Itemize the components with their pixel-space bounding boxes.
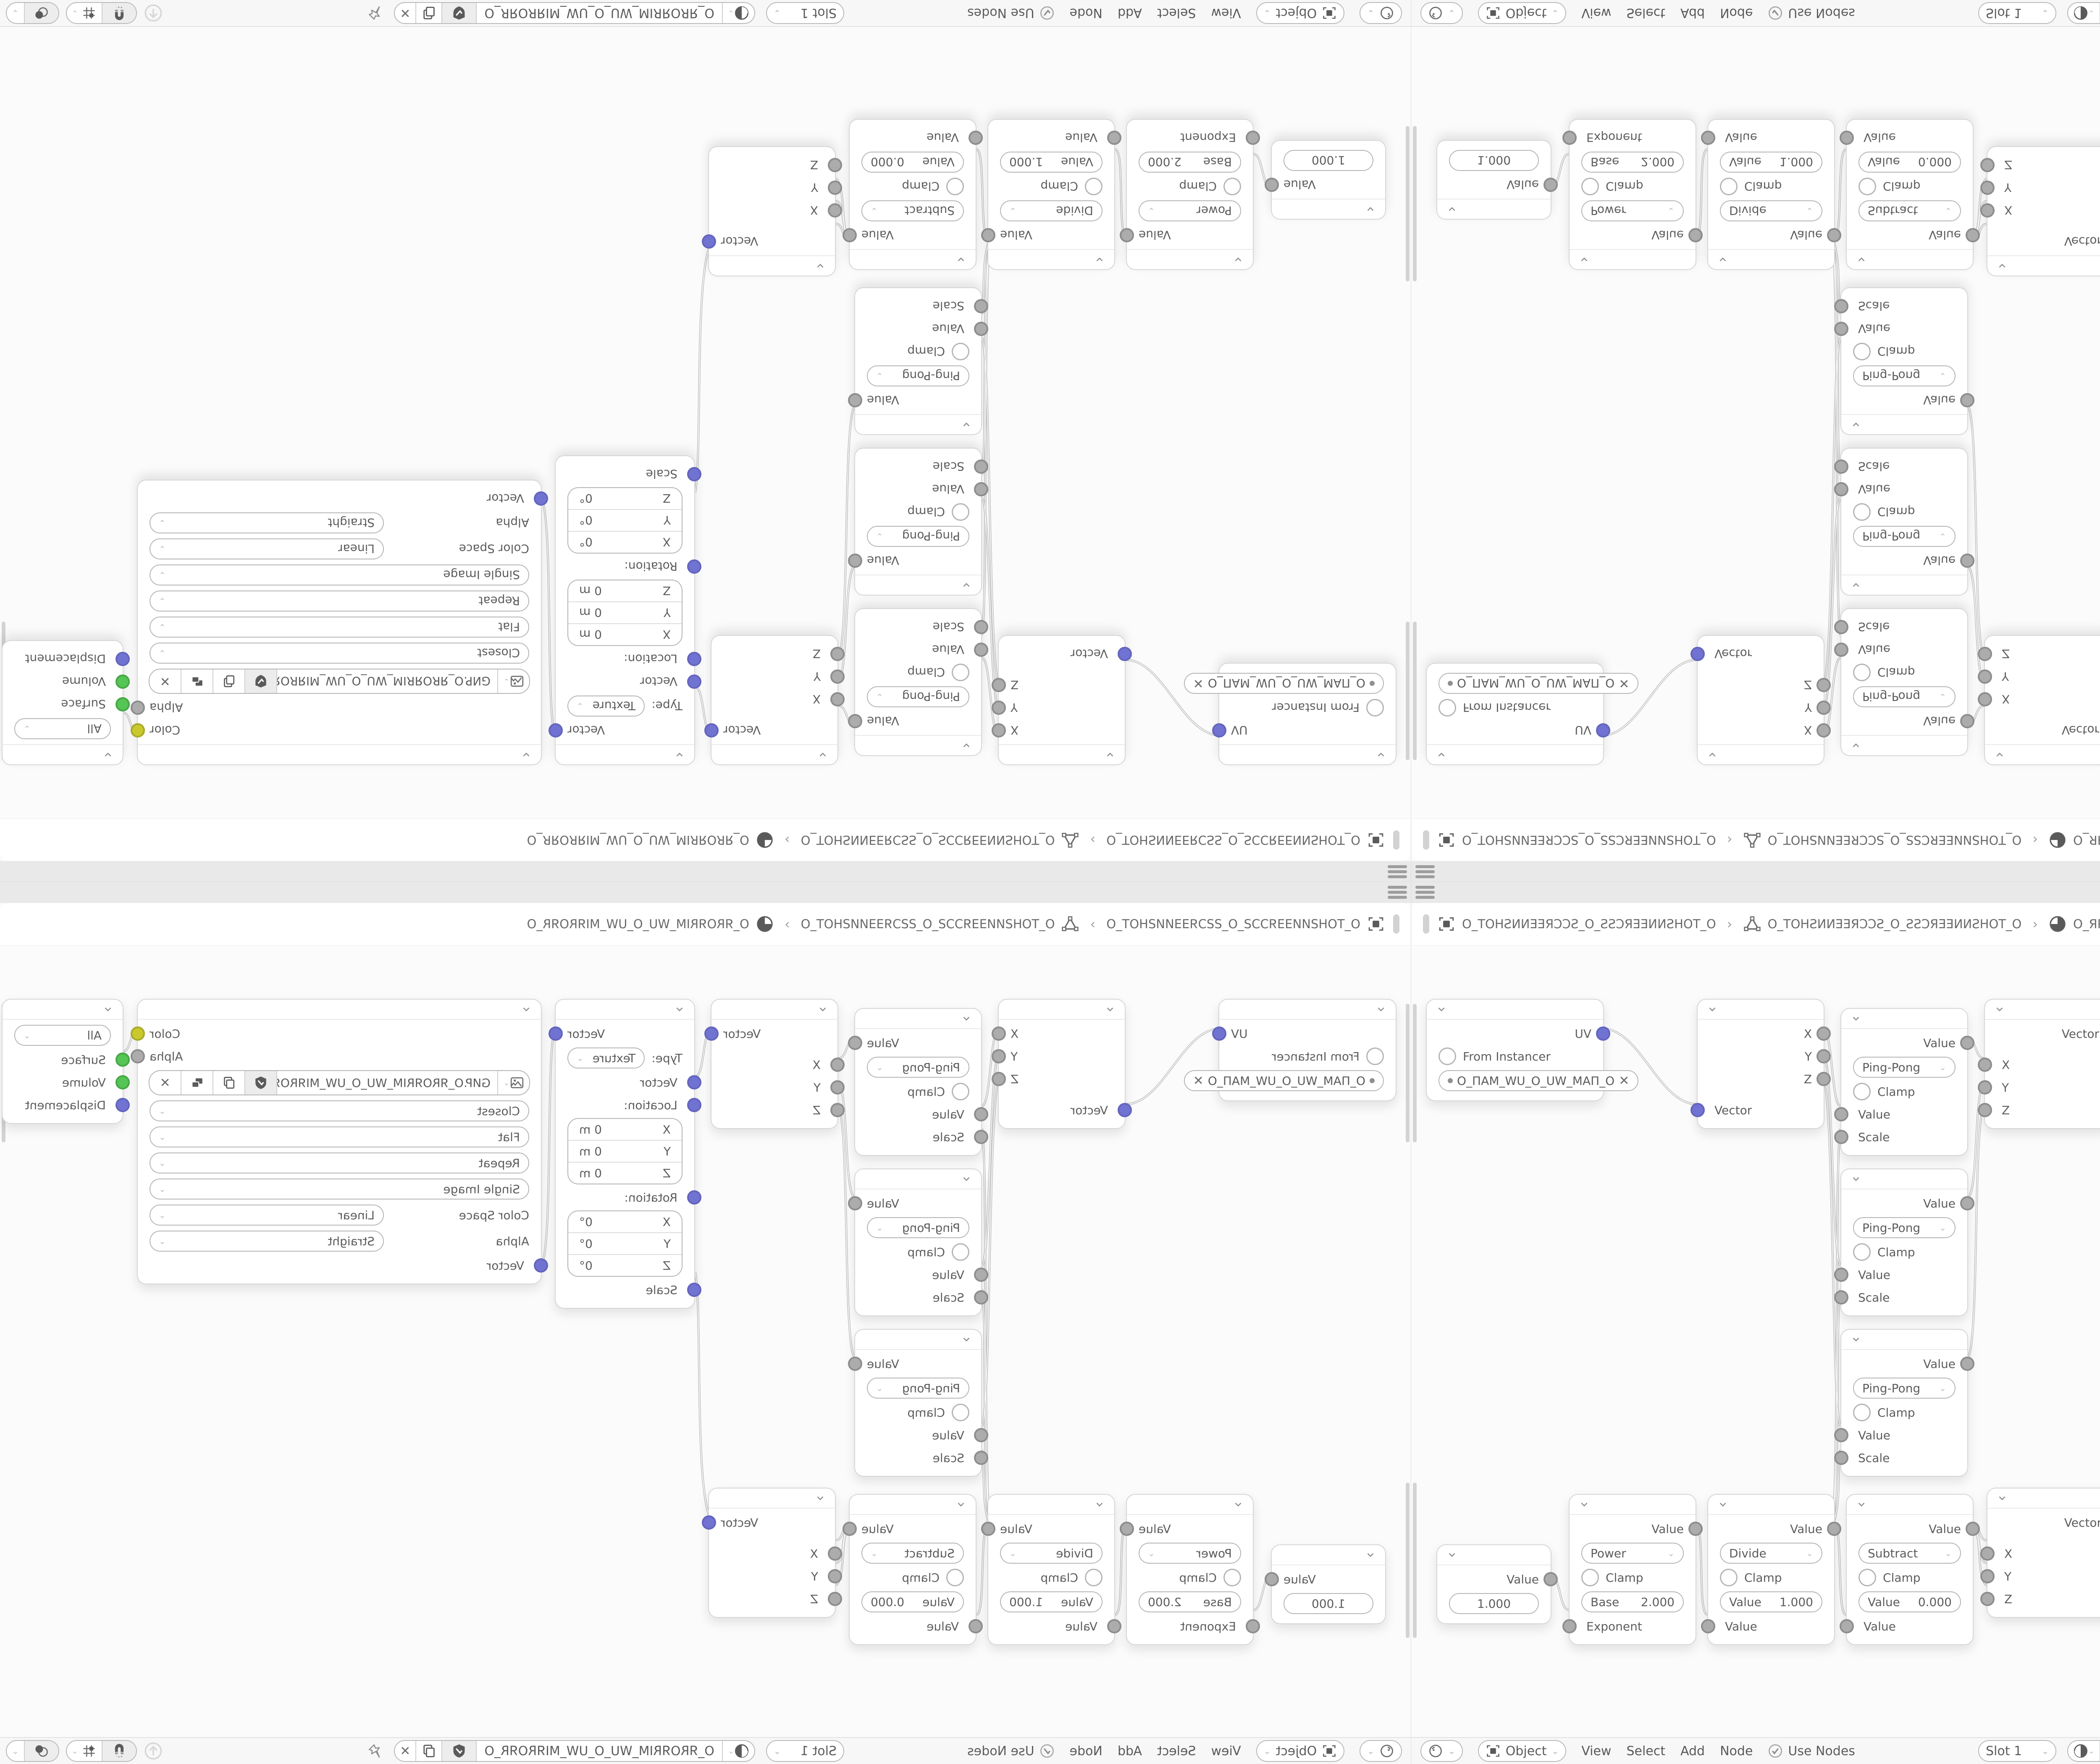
color-output-socket[interactable] <box>131 1026 145 1041</box>
location-input-socket[interactable] <box>687 652 701 666</box>
breadcrumb-material[interactable]: O_ЯROЯRIM_WU_O_UW_MIЯROЯR_O <box>2049 831 2100 849</box>
value-output-socket[interactable] <box>1543 1572 1558 1586</box>
clamp-checkbox[interactable] <box>1085 178 1102 195</box>
math-operation-dropdown[interactable]: Power⌄ <box>1581 200 1684 221</box>
menu-add[interactable]: Add <box>1680 6 1705 21</box>
rotation-z-field[interactable]: Z0° <box>568 1254 682 1276</box>
snap-toggle-button[interactable] <box>102 1741 136 1761</box>
node-math-divide[interactable]: Value Divide⌄ Clamp Value1.000 Value <box>987 1494 1115 1645</box>
browse-material-button[interactable]: ⌄ <box>2068 3 2100 23</box>
math-operation-dropdown[interactable]: Ping-Pong⌄ <box>1853 1217 1956 1238</box>
surface-input-socket[interactable] <box>115 1053 130 1067</box>
scale-input-socket[interactable] <box>687 1283 701 1297</box>
clamp-checkbox[interactable] <box>952 664 969 681</box>
up-arrow-circle-icon[interactable] <box>144 1741 163 1761</box>
node-math-pingpong-1[interactable]: Value Ping-Pong⌄ Clamp Value Scale <box>854 1008 982 1156</box>
material-slot-dropdown[interactable]: Slot 1⌄ <box>766 2 844 24</box>
scale-input-socket[interactable] <box>1834 1451 1848 1465</box>
value-output-socket[interactable] <box>843 1522 857 1536</box>
node-math-subtract[interactable]: Value Subtract⌄ Clamp Value0.000 Value <box>849 1494 976 1645</box>
material-slot-dropdown[interactable]: Slot 1⌄ <box>1978 1740 2056 1762</box>
base-field[interactable]: Base2.000 <box>1581 1591 1684 1612</box>
x-input-socket[interactable] <box>1978 692 1992 706</box>
z-input-socket[interactable] <box>828 1592 842 1606</box>
value-output-socket[interactable] <box>1688 1522 1703 1536</box>
z-input-socket[interactable] <box>830 647 845 661</box>
mapping-type-dropdown[interactable]: Texture⌄ <box>567 1047 645 1068</box>
value-output-socket[interactable] <box>848 554 862 568</box>
x-input-socket[interactable] <box>1980 1546 1995 1561</box>
node-uv-map[interactable]: UV From Instancer O_ПAM_WU_O_UW_MAП_O ✕ <box>1218 663 1396 765</box>
value-output-socket[interactable] <box>1688 228 1703 242</box>
copy-image-button[interactable] <box>213 1071 245 1095</box>
node-material-output[interactable]: All⌄ Surface Volume Displacement <box>2 640 123 765</box>
rotation-x-field[interactable]: X0° <box>568 1211 682 1232</box>
z-output-socket[interactable] <box>992 1072 1006 1086</box>
vertical-scrollbar[interactable] <box>1406 126 1410 281</box>
copy-material-button[interactable] <box>416 3 442 23</box>
vector-input-socket[interactable] <box>1118 647 1132 661</box>
value-field[interactable]: Value1.000 <box>1000 152 1102 173</box>
base-field[interactable]: Base2.000 <box>1581 152 1684 173</box>
vector-output-socket[interactable] <box>704 1026 719 1041</box>
math-operation-dropdown[interactable]: Divide⌄ <box>1000 1543 1102 1564</box>
value-field[interactable]: Value1.000 <box>1720 152 1822 173</box>
node-image-texture[interactable]: Color Alpha ⌄ GИP.O_ЯROЯRIM_WU_O_UW_MIЯR… <box>137 999 542 1284</box>
node-math-pingpong-2[interactable]: Value Ping-Pong⌄ Clamp Value Scale <box>854 448 982 596</box>
math-operation-dropdown[interactable]: Power⌄ <box>1581 1543 1684 1564</box>
node-uv-map[interactable]: UV From Instancer O_ПAM_WU_O_UW_MAП_O ✕ <box>1218 999 1396 1101</box>
y-output-socket[interactable] <box>992 701 1006 715</box>
math-operation-dropdown[interactable]: Subtract⌄ <box>861 200 964 221</box>
from-instancer-checkbox[interactable] <box>1366 1047 1384 1065</box>
node-math-divide[interactable]: Value Divide⌄ Clamp Value1.000 Value <box>1707 1494 1835 1645</box>
editor-type-dropdown[interactable]: ⌄ <box>1360 1740 1402 1762</box>
use-nodes-toggle[interactable]: Use Nodes <box>1768 5 1855 21</box>
use-nodes-toggle[interactable]: Use Nodes <box>967 1743 1055 1759</box>
node-math-pingpong-2[interactable]: Value Ping-Pong⌄ Clamp Value Scale <box>854 1168 982 1316</box>
vector-input-socket[interactable] <box>1690 647 1705 661</box>
clamp-checkbox[interactable] <box>952 1083 969 1100</box>
clamp-checkbox[interactable] <box>1853 343 1871 360</box>
value-input-socket[interactable] <box>1840 1619 1854 1633</box>
menu-node[interactable]: Node <box>1070 1744 1102 1759</box>
clamp-checkbox[interactable] <box>1858 178 1876 195</box>
z-input-socket[interactable] <box>830 1103 845 1117</box>
location-input-socket[interactable] <box>687 1098 701 1112</box>
clear-uv-button[interactable]: ✕ <box>1619 676 1629 691</box>
uv-map-dropdown[interactable]: O_ПAM_WU_O_UW_MAП_O ✕ <box>1184 1070 1384 1091</box>
math-operation-dropdown[interactable]: Ping-Pong⌄ <box>867 1217 969 1238</box>
x-input-socket[interactable] <box>830 1058 845 1072</box>
math-operation-dropdown[interactable]: Subtract⌄ <box>861 1543 964 1564</box>
snap-mode-dropdown[interactable]: ⌄ <box>67 3 102 23</box>
value-output-socket[interactable] <box>848 1357 862 1371</box>
y-input-socket[interactable] <box>830 1080 845 1095</box>
breadcrumb-object[interactable]: O_TOHƧИИƎƎЯƆƆƧ_O_ƧƧƆЯƎƎИИƧHOT_O <box>1743 831 2022 849</box>
node-combine-xyz-2[interactable]: Vector X Y Z <box>708 1488 836 1618</box>
auto-offset-button[interactable] <box>25 3 58 23</box>
menu-select[interactable]: Select <box>1626 1744 1665 1759</box>
value-input-socket[interactable] <box>1834 482 1848 496</box>
breadcrumb-object[interactable]: O_TOHƧИИƎƎЯƆƆƧ_O_ƧƧƆЯƎƎИИƧHOT_O <box>801 915 1079 933</box>
menu-view[interactable]: View <box>1211 6 1241 21</box>
value-input-socket[interactable] <box>969 1619 983 1633</box>
extension-dropdown[interactable]: Repeat⌄ <box>150 591 529 612</box>
math-operation-dropdown[interactable]: Ping-Pong⌄ <box>867 1378 969 1399</box>
node-mapping[interactable]: Vector Type:Texture⌄ Vector Location: X0… <box>555 455 695 765</box>
x-input-socket[interactable] <box>1980 203 1995 218</box>
math-operation-dropdown[interactable]: Ping-Pong⌄ <box>1853 526 1956 547</box>
snap-mode-dropdown[interactable]: ⌄ <box>67 1741 102 1761</box>
value-field[interactable]: Value1.000 <box>1720 1591 1822 1612</box>
value-input-socket[interactable] <box>969 131 983 145</box>
value-input-socket[interactable] <box>974 643 988 657</box>
z-output-socket[interactable] <box>1816 678 1831 692</box>
value-input-socket[interactable] <box>974 322 988 336</box>
node-header[interactable] <box>999 1000 1125 1020</box>
node-combine-xyz[interactable]: Vector X Y Z <box>711 999 838 1129</box>
value-field[interactable]: Value0.000 <box>1858 152 1961 173</box>
uv-map-dropdown[interactable]: O_ПAM_WU_O_UW_MAП_O ✕ <box>1438 673 1638 694</box>
surface-input-socket[interactable] <box>115 697 130 711</box>
node-value[interactable]: Value 1.000 <box>1436 140 1551 220</box>
menu-add[interactable]: Add <box>1680 1744 1705 1759</box>
value-field[interactable]: 1.000 <box>1449 1593 1539 1614</box>
clamp-checkbox[interactable] <box>946 178 964 195</box>
value-output-socket[interactable] <box>981 228 995 242</box>
math-operation-dropdown[interactable]: Ping-Pong⌄ <box>1853 1057 1956 1078</box>
value-input-socket[interactable] <box>1840 131 1854 145</box>
menu-select[interactable]: Select <box>1157 1744 1196 1759</box>
shader-context-dropdown[interactable]: Object ⌄ <box>1256 2 1344 24</box>
scale-input-socket[interactable] <box>974 1290 988 1305</box>
node-combine-xyz[interactable]: Vector X Y Z <box>1984 635 2100 765</box>
y-input-socket[interactable] <box>828 1569 842 1583</box>
node-math-pingpong-3[interactable]: Value Ping-Pong⌄ Clamp Value Scale <box>854 1329 982 1477</box>
math-operation-dropdown[interactable]: Ping-Pong⌄ <box>1853 365 1956 386</box>
clamp-checkbox[interactable] <box>1853 1243 1871 1261</box>
base-field[interactable]: Base2.000 <box>1139 1591 1241 1612</box>
unlink-image-button[interactable]: ✕ <box>150 1071 181 1095</box>
node-image-texture[interactable]: Color Alpha ⌄ GИP.O_ЯROЯRIM_WU_O_UW_MIЯR… <box>137 480 542 765</box>
scale-input-socket[interactable] <box>687 467 701 481</box>
clear-uv-button[interactable]: ✕ <box>1619 1074 1629 1088</box>
node-header[interactable] <box>1427 744 1603 764</box>
from-instancer-checkbox[interactable] <box>1438 699 1456 717</box>
breadcrumb-object[interactable]: O_TOHƧИИƎƎЯƆƆƧ_O_ƧƧƆЯƎƎИИƧHOT_O <box>801 831 1079 849</box>
node-math-pingpong-1[interactable]: Value Ping-Pong⌄ Clamp Value Scale <box>1840 608 1968 756</box>
projection-dropdown[interactable]: Flat⌄ <box>150 617 529 638</box>
color-space-dropdown[interactable]: Linear⌄ <box>150 1205 384 1226</box>
node-math-power[interactable]: Value Power⌄ Clamp Base2.000 Exponent <box>1126 1494 1254 1645</box>
node-header[interactable] <box>1427 1000 1603 1020</box>
vector-input-socket[interactable] <box>1690 1103 1705 1117</box>
math-operation-dropdown[interactable]: Subtract⌄ <box>1858 200 1961 221</box>
clamp-checkbox[interactable] <box>1853 503 1871 521</box>
scale-input-socket[interactable] <box>1834 1130 1848 1144</box>
vertical-scrollbar[interactable] <box>1406 622 1410 760</box>
clamp-checkbox[interactable] <box>1853 664 1871 681</box>
z-output-socket[interactable] <box>1816 1072 1831 1086</box>
x-input-socket[interactable] <box>828 203 842 218</box>
source-dropdown[interactable]: Single Image⌄ <box>150 1179 529 1200</box>
uv-map-dropdown[interactable]: O_ПAM_WU_O_UW_MAП_O ✕ <box>1438 1070 1638 1091</box>
color-output-socket[interactable] <box>131 723 145 738</box>
area-corner-handle[interactable] <box>1393 830 1399 850</box>
clamp-checkbox[interactable] <box>1223 1569 1241 1586</box>
vertical-scrollbar[interactable] <box>1406 1483 1410 1638</box>
value-input-socket[interactable] <box>974 1428 988 1442</box>
scale-input-socket[interactable] <box>1834 620 1848 634</box>
value-output-socket[interactable] <box>1120 1522 1134 1536</box>
value-input-socket[interactable] <box>1107 1619 1121 1633</box>
material-name-field[interactable]: O_ЯROЯRIM_WU_O_UW_MIЯROЯR_O <box>477 1741 723 1761</box>
breadcrumb-scene[interactable]: O_TOHƧИИƎƎЯƆƆƧ_O_ƧƧƆЯƎƎИИƧHOT_O <box>1106 831 1385 849</box>
rotation-y-field[interactable]: Y0° <box>568 1232 682 1254</box>
x-input-socket[interactable] <box>828 1546 842 1561</box>
area-corner-handle[interactable] <box>1393 914 1399 934</box>
breadcrumb-scene[interactable]: O_TOHƧИИƎƎЯƆƆƧ_O_ƧƧƆЯƎƎИИƧHOT_O <box>1106 915 1385 933</box>
clamp-checkbox[interactable] <box>1581 178 1599 195</box>
node-combine-xyz-2[interactable]: Vector X Y Z <box>1987 1488 2100 1618</box>
value-field[interactable]: Value0.000 <box>861 152 964 173</box>
area-resize-grip[interactable] <box>1415 865 1435 878</box>
rotation-z-field[interactable]: Z0° <box>568 488 682 510</box>
vertical-scrollbar[interactable] <box>1413 126 1417 281</box>
vector-input-socket[interactable] <box>534 491 548 506</box>
location-z-field[interactable]: Z0 m <box>568 580 682 602</box>
fake-user-shield-button[interactable] <box>245 669 277 693</box>
value-output-socket[interactable] <box>1265 178 1279 192</box>
value-output-socket[interactable] <box>848 393 862 407</box>
node-header[interactable] <box>1219 744 1396 764</box>
clear-uv-button[interactable]: ✕ <box>1193 1074 1204 1088</box>
math-operation-dropdown[interactable]: Ping-Pong⌄ <box>867 526 969 547</box>
clamp-checkbox[interactable] <box>1720 178 1738 195</box>
math-operation-dropdown[interactable]: Divide⌄ <box>1000 200 1102 221</box>
image-name-field[interactable]: GИP.O_ЯROЯRIM_WU_O_UW_MIЯROЯR_O.PNG <box>277 669 498 693</box>
value-input-socket[interactable] <box>974 1107 988 1121</box>
math-operation-dropdown[interactable]: Power⌄ <box>1139 1543 1241 1564</box>
node-mapping[interactable]: Vector Type:Texture⌄ Vector Location: X0… <box>555 999 695 1309</box>
from-instancer-checkbox[interactable] <box>1366 699 1384 717</box>
node-math-pingpong-2[interactable]: Value Ping-Pong⌄ Clamp Value Scale <box>1840 448 1968 596</box>
pin-icon[interactable] <box>368 5 383 21</box>
overlap-dropdown[interactable]: ⌄ <box>7 1741 25 1761</box>
location-y-field[interactable]: Y0 m <box>568 1140 682 1162</box>
value-output-socket[interactable] <box>1265 1572 1279 1586</box>
breadcrumb-material[interactable]: O_ЯROЯRIM_WU_O_UW_MIЯROЯR_O <box>527 831 774 849</box>
uv-map-dropdown[interactable]: O_ПAM_WU_O_UW_MAП_O ✕ <box>1184 673 1384 694</box>
math-operation-dropdown[interactable]: Divide⌄ <box>1720 1543 1822 1564</box>
editor-type-dropdown[interactable]: ⌄ <box>1420 2 1463 24</box>
vector-output-socket[interactable] <box>702 234 716 249</box>
node-math-power[interactable]: Value Power⌄ Clamp Base2.000 Exponent <box>1569 1494 1696 1645</box>
alpha-output-socket[interactable] <box>131 701 145 715</box>
vector-input-socket[interactable] <box>687 675 701 689</box>
node-combine-xyz-2[interactable]: Vector X Y Z <box>708 146 836 276</box>
math-operation-dropdown[interactable]: Subtract⌄ <box>1858 1543 1961 1564</box>
value-input-socket[interactable] <box>1834 1107 1848 1121</box>
up-arrow-circle-icon[interactable] <box>144 3 163 23</box>
shader-context-dropdown[interactable]: Object ⌄ <box>1478 1740 1566 1762</box>
scale-input-socket[interactable] <box>974 1130 988 1144</box>
y-input-socket[interactable] <box>1980 1569 1995 1583</box>
node-combine-xyz-2[interactable]: Vector X Y Z <box>1987 146 2100 276</box>
scale-input-socket[interactable] <box>1834 459 1848 474</box>
breadcrumb-scene[interactable]: O_TOHƧИИƎƎЯƆƆƧ_O_ƧƧƆЯƎƎИИƧHOT_O <box>1438 915 1716 933</box>
fake-user-shield-button[interactable] <box>442 3 477 23</box>
math-operation-dropdown[interactable]: Ping-Pong⌄ <box>1853 686 1956 707</box>
node-math-subtract[interactable]: Value Subtract⌄ Clamp Value0.000 Value <box>1846 119 1974 270</box>
displacement-input-socket[interactable] <box>115 1098 130 1112</box>
scale-input-socket[interactable] <box>974 1451 988 1465</box>
clamp-checkbox[interactable] <box>952 343 969 360</box>
menu-view[interactable]: View <box>1211 1744 1241 1759</box>
z-output-socket[interactable] <box>992 678 1006 692</box>
vector-input-socket[interactable] <box>1118 1103 1132 1117</box>
breadcrumb-object[interactable]: O_TOHƧИИƎƎЯƆƆƧ_O_ƧƧƆЯƎƎИИƧHOT_O <box>1743 915 2022 933</box>
math-operation-dropdown[interactable]: Ping-Pong⌄ <box>1853 1378 1956 1399</box>
value-output-socket[interactable] <box>1960 393 1974 407</box>
y-output-socket[interactable] <box>1816 701 1831 715</box>
x-output-socket[interactable] <box>1816 723 1831 738</box>
uv-output-socket[interactable] <box>1212 723 1226 738</box>
node-math-pingpong-3[interactable]: Value Ping-Pong⌄ Clamp Value Scale <box>1840 287 1968 435</box>
x-output-socket[interactable] <box>992 723 1006 738</box>
value-input-socket[interactable] <box>1834 643 1848 657</box>
shader-context-dropdown[interactable]: Object ⌄ <box>1256 1740 1344 1762</box>
menu-select[interactable]: Select <box>1157 6 1196 21</box>
image-browse-button[interactable]: ⌄ <box>498 1071 529 1095</box>
pin-icon[interactable] <box>368 1743 383 1759</box>
value-field[interactable]: 1.000 <box>1284 1593 1373 1614</box>
uv-output-socket[interactable] <box>1596 1026 1610 1041</box>
node-separate-xyz[interactable]: X Y Z Vector <box>1697 999 1824 1129</box>
z-input-socket[interactable] <box>828 158 842 172</box>
node-value[interactable]: Value 1.000 <box>1271 140 1386 220</box>
value-output-socket[interactable] <box>1960 1357 1974 1371</box>
value-input-socket[interactable] <box>1834 1428 1848 1442</box>
vertical-scrollbar[interactable] <box>1413 1004 1417 1142</box>
use-nodes-toggle[interactable]: Use Nodes <box>1768 1743 1855 1759</box>
location-y-field[interactable]: Y0 m <box>568 602 682 624</box>
area-corner-handle[interactable] <box>1423 914 1429 934</box>
node-math-power[interactable]: Value Power⌄ Clamp Base2.000 Exponent <box>1569 119 1696 270</box>
y-input-socket[interactable] <box>830 669 845 684</box>
scale-input-socket[interactable] <box>1834 299 1848 313</box>
volume-input-socket[interactable] <box>115 675 130 689</box>
node-header[interactable] <box>1219 1000 1396 1020</box>
value-output-socket[interactable] <box>843 228 857 242</box>
menu-node[interactable]: Node <box>1720 6 1753 21</box>
mapping-type-dropdown[interactable]: Texture⌄ <box>567 696 645 717</box>
node-combine-xyz[interactable]: Vector X Y Z <box>711 635 838 765</box>
vertical-scrollbar[interactable] <box>1406 1004 1410 1142</box>
exponent-input-socket[interactable] <box>1562 1619 1577 1633</box>
source-dropdown[interactable]: Single Image⌄ <box>150 564 529 585</box>
value-output-socket[interactable] <box>1827 1522 1841 1536</box>
exponent-input-socket[interactable] <box>1246 1619 1260 1633</box>
browse-material-button[interactable]: ⌄ <box>723 1741 754 1761</box>
x-output-socket[interactable] <box>992 1026 1006 1041</box>
menu-add[interactable]: Add <box>1118 6 1142 21</box>
value-output-socket[interactable] <box>1543 178 1558 192</box>
value-input-socket[interactable] <box>1107 131 1121 145</box>
value-output-socket[interactable] <box>1966 1522 1980 1536</box>
value-output-socket[interactable] <box>1960 1036 1974 1050</box>
vector-output-socket[interactable] <box>549 1026 563 1041</box>
value-input-socket[interactable] <box>1701 1619 1715 1633</box>
clamp-checkbox[interactable] <box>1085 1569 1102 1586</box>
node-math-pingpong-1[interactable]: Value Ping-Pong⌄ Clamp Value Scale <box>854 608 982 756</box>
projection-dropdown[interactable]: Flat⌄ <box>150 1126 529 1147</box>
breadcrumb-material[interactable]: O_ЯROЯRIM_WU_O_UW_MIЯROЯR_O <box>527 915 774 933</box>
scale-input-socket[interactable] <box>974 459 988 474</box>
value-output-socket[interactable] <box>1960 714 1974 728</box>
exponent-input-socket[interactable] <box>1246 131 1260 145</box>
value-output-socket[interactable] <box>1120 228 1134 242</box>
browse-material-button[interactable]: ⌄ <box>2068 1741 2100 1761</box>
menu-view[interactable]: View <box>1581 1744 1611 1759</box>
vector-output-socket[interactable] <box>704 723 719 738</box>
menu-node[interactable]: Node <box>1720 1744 1753 1759</box>
output-target-dropdown[interactable]: All⌄ <box>14 1025 111 1046</box>
alpha-mode-dropdown[interactable]: Straight⌄ <box>150 1231 384 1252</box>
displacement-input-socket[interactable] <box>115 652 130 666</box>
node-math-power[interactable]: Value Power⌄ Clamp Base2.000 Exponent <box>1126 119 1254 270</box>
node-math-pingpong-1[interactable]: Value Ping-Pong⌄ Clamp Value Scale <box>1840 1008 1968 1156</box>
value-input-socket[interactable] <box>1701 131 1715 145</box>
unlink-material-button[interactable]: ✕ <box>395 1741 416 1761</box>
interpolation-dropdown[interactable]: Closest⌄ <box>150 1100 529 1121</box>
material-name-field[interactable]: O_ЯROЯRIM_WU_O_UW_MIЯROЯR_O <box>477 3 723 23</box>
base-field[interactable]: Base2.000 <box>1139 152 1241 173</box>
unlink-image-button[interactable]: ✕ <box>150 669 181 693</box>
uv-output-socket[interactable] <box>1212 1026 1226 1041</box>
y-input-socket[interactable] <box>1978 669 1992 684</box>
area-resize-grip[interactable] <box>1388 865 1407 878</box>
image-browse-button[interactable]: ⌄ <box>498 669 529 693</box>
math-operation-dropdown[interactable]: Power⌄ <box>1139 200 1241 221</box>
value-input-socket[interactable] <box>1834 322 1848 336</box>
value-field[interactable]: Value0.000 <box>1858 1591 1961 1612</box>
value-output-socket[interactable] <box>848 714 862 728</box>
rotation-y-field[interactable]: Y0° <box>568 510 682 532</box>
value-field[interactable]: Value0.000 <box>861 1591 964 1612</box>
vertical-scrollbar[interactable] <box>1413 1483 1417 1638</box>
z-input-socket[interactable] <box>1978 1103 1992 1117</box>
extension-dropdown[interactable]: Repeat⌄ <box>150 1152 529 1173</box>
clamp-checkbox[interactable] <box>1581 1569 1599 1586</box>
node-math-pingpong-2[interactable]: Value Ping-Pong⌄ Clamp Value Scale <box>1840 1168 1968 1316</box>
interpolation-dropdown[interactable]: Closest⌄ <box>150 643 529 664</box>
alpha-mode-dropdown[interactable]: Straight⌄ <box>150 512 384 533</box>
value-field[interactable]: 1.000 <box>1284 150 1373 171</box>
node-header[interactable] <box>1698 1000 1824 1020</box>
vector-output-socket[interactable] <box>702 1515 716 1530</box>
vector-input-socket[interactable] <box>687 1075 701 1089</box>
output-target-dropdown[interactable]: All⌄ <box>14 718 111 739</box>
scale-input-socket[interactable] <box>1834 1290 1848 1305</box>
vector-input-socket[interactable] <box>534 1258 548 1273</box>
snap-toggle-button[interactable] <box>102 3 136 23</box>
value-output-socket[interactable] <box>848 1036 862 1050</box>
value-input-socket[interactable] <box>974 482 988 496</box>
clamp-checkbox[interactable] <box>952 503 969 521</box>
menu-select[interactable]: Select <box>1626 6 1665 21</box>
